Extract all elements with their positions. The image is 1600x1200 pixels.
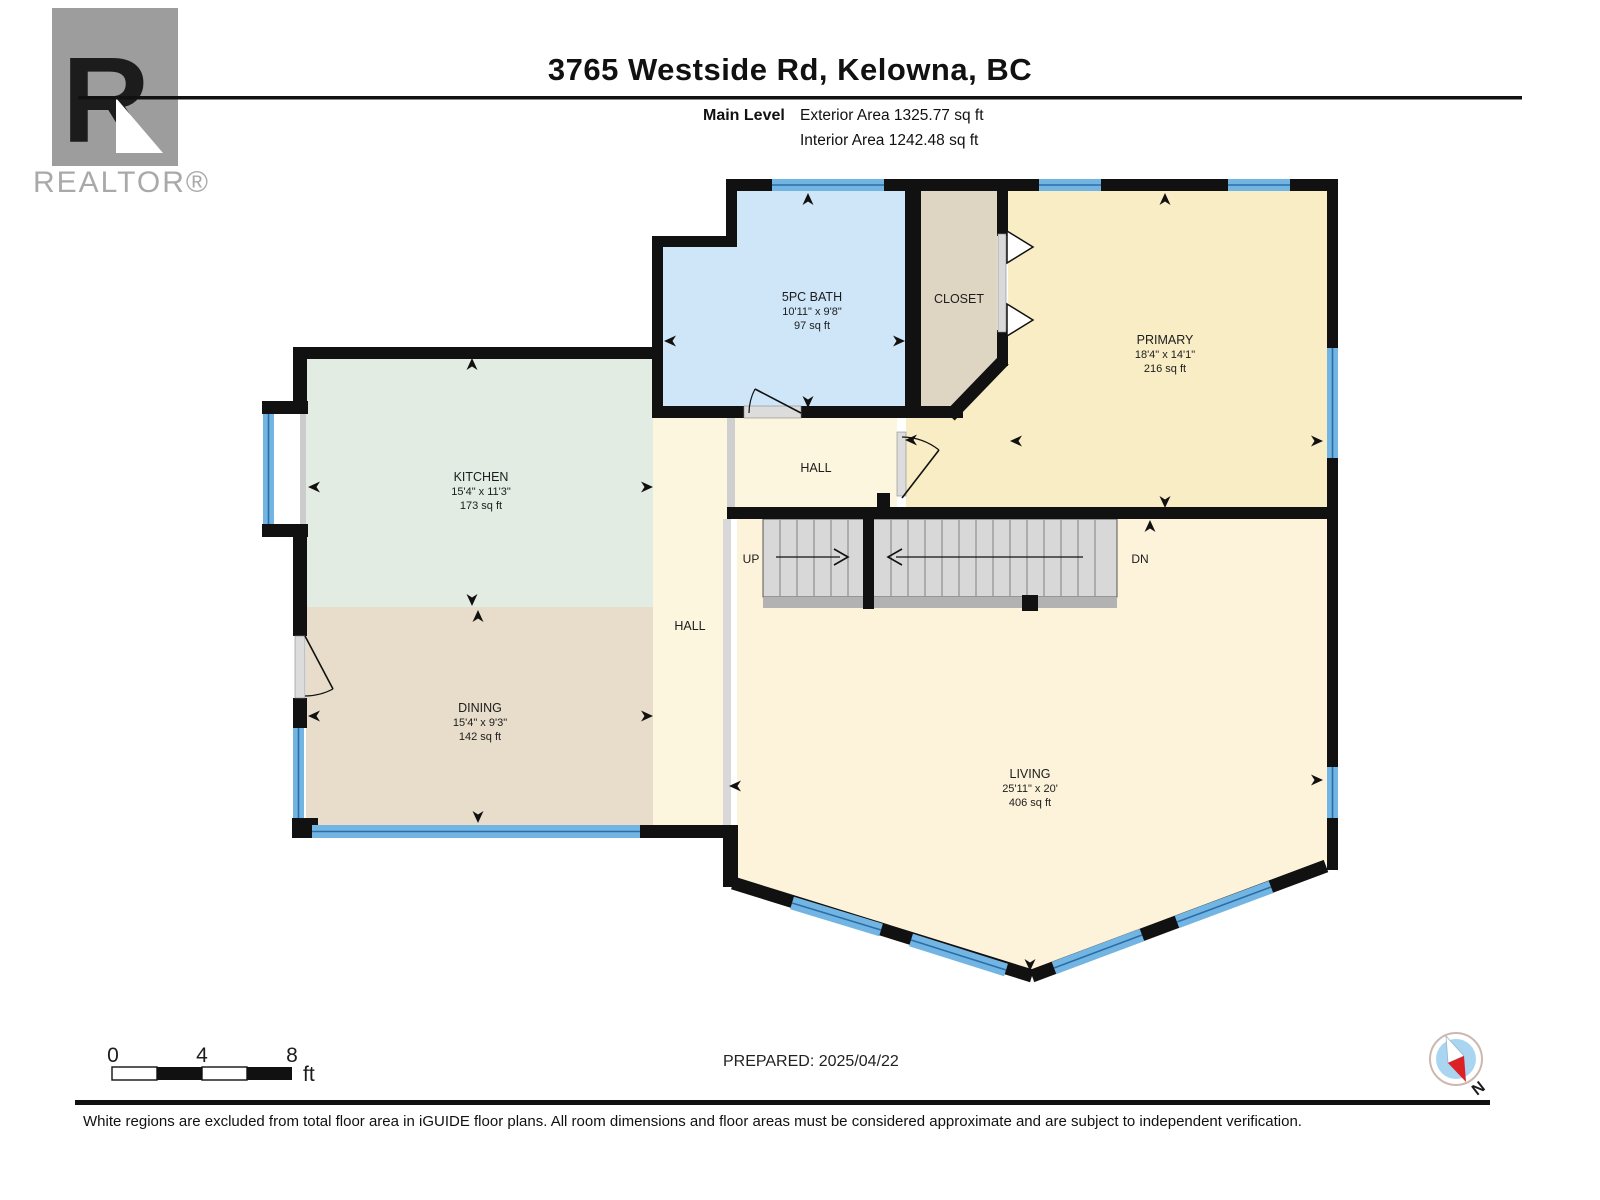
scale-tick-4: 4 xyxy=(196,1044,208,1067)
exterior-area-text: Exterior Area 1325.77 sq ft xyxy=(800,107,984,125)
dining-dims: 15'4" x 9'3" xyxy=(453,717,507,729)
wall-primary-bottom xyxy=(727,507,1338,519)
prepared-date: PREPARED: 2025/04/22 xyxy=(723,1053,899,1071)
stair-wall-stub xyxy=(1022,595,1038,611)
closet-door-jamb xyxy=(998,234,1006,332)
floor-plan-svg: R xyxy=(0,0,1600,1200)
room-dining xyxy=(306,607,653,825)
footer-divider-line xyxy=(75,1100,1490,1105)
living-dims: 25'11" x 20' xyxy=(1002,783,1058,795)
page-title: 3765 Westside Rd, Kelowna, BC xyxy=(0,52,1580,88)
primary-label: PRIMARY xyxy=(1137,333,1194,347)
floor-plan-page: R xyxy=(0,0,1600,1200)
wall-bath-notch-horiz xyxy=(652,236,737,247)
wall-kitchen-top xyxy=(293,347,663,359)
dining-label: DINING xyxy=(458,701,502,715)
stair-treads-area xyxy=(763,519,1117,597)
wall-bay-top-block xyxy=(262,401,308,414)
dining-door-jamb xyxy=(295,636,305,698)
hall-door-jamb xyxy=(897,432,906,496)
compass: N xyxy=(1430,1033,1489,1099)
realtor-wordmark: REALTOR® xyxy=(33,166,210,200)
stairs-up-label: UP xyxy=(743,552,760,566)
room-bath-notch xyxy=(663,247,737,412)
compass-north-label: N xyxy=(1469,1079,1489,1100)
staircase xyxy=(763,519,1117,611)
stair-center-divider xyxy=(863,519,874,609)
kitchen-dims: 15'4" x 11'3" xyxy=(451,486,511,498)
wall-bath-bottom xyxy=(652,406,963,418)
scale-bar: 0 4 8 ft xyxy=(107,1044,315,1086)
wall-bath-closet-divider xyxy=(905,185,921,418)
wall-kitchen-west-mid xyxy=(293,530,307,636)
stair-bottom-band xyxy=(763,597,1117,608)
hall-corridor-label: HALL xyxy=(674,619,705,633)
scale-tick-0: 0 xyxy=(107,1044,119,1067)
header-divider-line xyxy=(78,96,1522,100)
hall-upper-label: HALL xyxy=(800,461,831,475)
wall-kitchen-west-upper xyxy=(293,347,307,404)
disclaimer-text: White regions are excluded from total fl… xyxy=(83,1113,1302,1130)
bath-dims: 10'11" x 9'8" xyxy=(782,306,842,318)
living-area: 406 sq ft xyxy=(1009,797,1051,809)
primary-area: 216 sq ft xyxy=(1144,363,1186,375)
wall-closet-east-top xyxy=(997,190,1008,236)
stairs-dn-label: DN xyxy=(1131,552,1148,566)
primary-dims: 18'4" x 14'1" xyxy=(1135,349,1195,361)
wall-hall-stub xyxy=(877,493,890,513)
kitchen-label: KITCHEN xyxy=(454,470,509,484)
hall-upper-west-jamb xyxy=(727,418,735,507)
scale-tick-8: 8 xyxy=(286,1044,298,1067)
kitchen-area: 173 sq ft xyxy=(460,500,502,512)
corridor-living-divider xyxy=(723,519,731,825)
level-label: Main Level xyxy=(703,107,785,125)
realtor-logo: R xyxy=(52,8,178,168)
bay-window-sill xyxy=(300,414,306,524)
bath-label: 5PC BATH xyxy=(782,290,842,304)
interior-area-text: Interior Area 1242.48 sq ft xyxy=(800,132,978,150)
wall-dining-west-block xyxy=(293,698,307,728)
bath-area: 97 sq ft xyxy=(794,320,830,332)
closet-label: CLOSET xyxy=(934,292,984,306)
dining-area: 142 sq ft xyxy=(459,731,501,743)
wall-bath-west xyxy=(652,236,663,418)
wall-east xyxy=(1327,179,1338,870)
living-label: LIVING xyxy=(1010,767,1051,781)
scale-unit: ft xyxy=(303,1063,315,1086)
bay-window-excluded-area xyxy=(274,414,300,524)
